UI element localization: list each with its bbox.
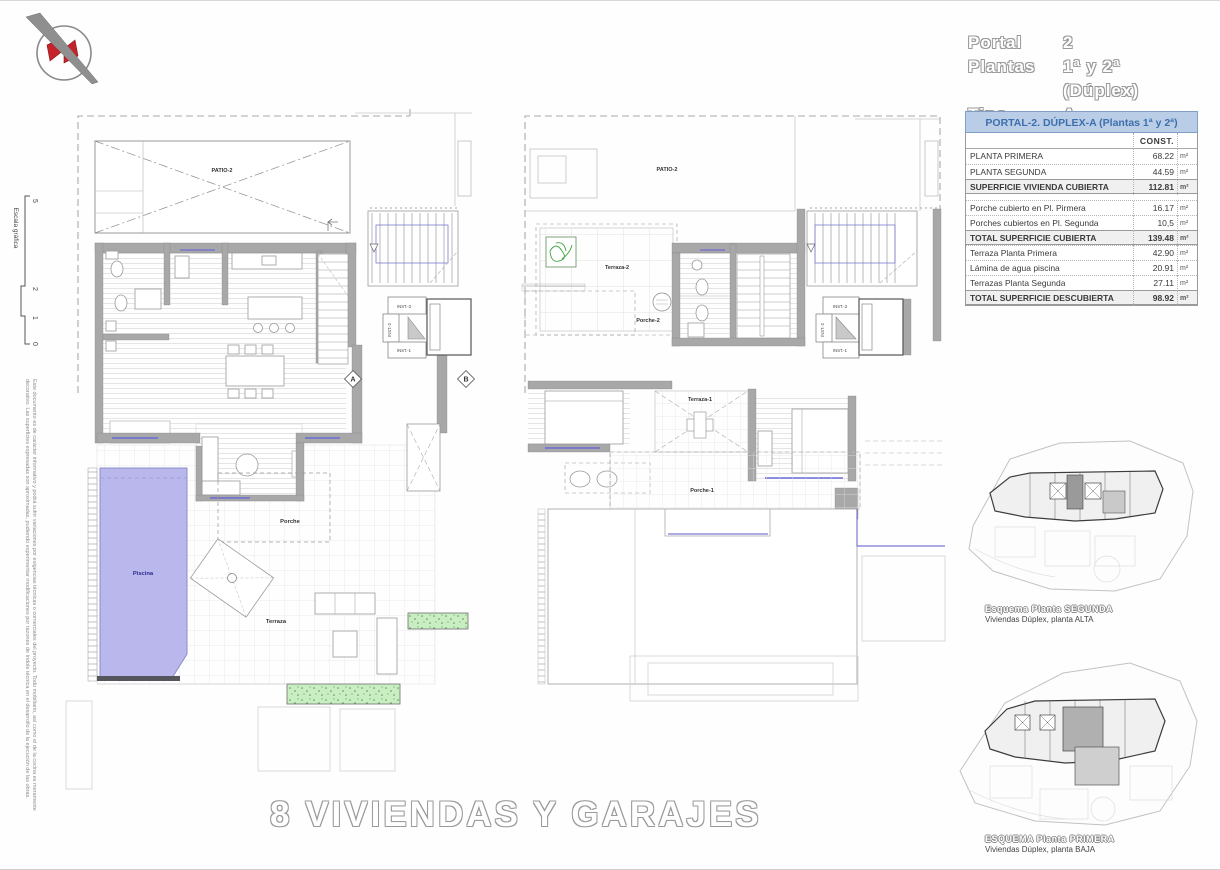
table-row: PLANTA SEGUNDA44.59m² [966, 164, 1197, 179]
table-row: SUPERFICIE VIVIENDA CUBIERTA112.81m² [966, 179, 1197, 194]
site-plan-primera-subcaption: Viviendas Dúplex, planta BAJA [985, 845, 1210, 854]
light-shaft [407, 424, 440, 491]
row-unit: m² [1177, 216, 1197, 231]
row-value: 98.92 [1133, 291, 1177, 306]
table-row: PLANTA PRIMERA68.22m² [966, 149, 1197, 164]
row-value: 44.59 [1133, 165, 1177, 180]
margin-disclaimer: Este documento es de carácter informativ… [23, 379, 37, 737]
inst1-label: INST.-1 [397, 348, 412, 353]
row-label: Lámina de agua piscina [966, 261, 1133, 276]
row-label: SUPERFICIE VIVIENDA CUBIERTA [966, 180, 1133, 195]
disclaimer-line-1: Este documento es de carácter informativ… [30, 379, 37, 737]
scale-tick-2: 2 [31, 287, 38, 291]
architect-logo [18, 9, 104, 95]
plan-sheet: 5 2 1 0 Escala gráfica Este documento es… [0, 0, 1220, 870]
const-header: CONST. [1133, 133, 1177, 149]
row-value: 16.17 [1133, 201, 1177, 216]
scale-line [21, 196, 30, 344]
communal-stairs [807, 208, 940, 286]
site-plan-segunda-drawing [955, 431, 1205, 599]
row-unit: m² [1177, 231, 1197, 246]
roof-edge-lines [355, 113, 472, 206]
living-room [196, 424, 302, 501]
site-plan-segunda-subcaption: Viviendas Dúplex, planta ALTA [985, 615, 1205, 624]
building-footprint [990, 471, 1163, 521]
scale-label: Escala gráfica [12, 208, 19, 249]
floor-plan-planta-segunda: PATIO-2 Terraza-2 Porche-2 [518, 109, 948, 724]
site-plan-segunda: Esquema Planta SEGUNDA Viviendas Dúplex,… [955, 431, 1205, 624]
sheet-title: 8 VIVIENDAS Y GARAJES [270, 795, 762, 835]
inst3-label: INST.-3 [833, 304, 848, 309]
row-label: TOTAL SUPERFICIE CUBIERTA [966, 231, 1133, 246]
row-value: 42.90 [1133, 246, 1177, 261]
pool: Piscina [88, 468, 187, 681]
inst3-label: INST.-3 [397, 304, 412, 309]
disclaimer-line-2: decorativo. Las superficies expresadas s… [23, 379, 30, 737]
row-label: Terrazas Planta Segunda [966, 276, 1133, 291]
graphic-scale: 5 2 1 0 Escala gráfica [5, 186, 45, 361]
row-label: Terraza Planta Primera [966, 246, 1133, 261]
highlighted-unit [1067, 475, 1083, 509]
row-label: PLANTA SEGUNDA [966, 165, 1133, 180]
elevator-shaft [859, 299, 903, 355]
floor-plan-planta-primera: PATIO-2 [60, 109, 480, 801]
scale-tick-1: 1 [31, 316, 38, 320]
elevator-shaft [427, 299, 471, 355]
row-unit: m² [1177, 149, 1197, 164]
site-plan-primera-caption: ESQUEMA Planta PRIMERA [985, 834, 1210, 844]
id-value-plantas: 1ª y 2ª (Dúplex) [1063, 55, 1200, 103]
table-row: TOTAL SUPERFICIE DESCUBIERTA98.92m² [966, 290, 1197, 305]
row-unit: m² [1177, 276, 1197, 291]
highlighted-unit [1063, 707, 1103, 751]
scale-tick-0: 0 [31, 342, 38, 346]
row-label: Porches cubiertos en Pl. Segunda [966, 216, 1133, 231]
row-unit: m² [1177, 291, 1197, 306]
inst2-label: INST.-2 [387, 322, 392, 337]
scale-tick-5: 5 [31, 199, 38, 203]
roof-edge-lines [525, 116, 940, 211]
site-plan-segunda-caption: Esquema Planta SEGUNDA [985, 604, 1205, 614]
internal-stairs [737, 254, 790, 338]
marker-a: A [350, 376, 355, 383]
row-unit: m² [1177, 246, 1197, 261]
highlighted-terrace [1075, 747, 1119, 785]
inst2-label: INST.-2 [820, 322, 825, 337]
row-unit: m² [1177, 165, 1197, 180]
table-row: Porche cubierto en Pl. Pirmera16.17m² [966, 200, 1197, 215]
table-row: Terraza Planta Primera42.90m² [966, 245, 1197, 260]
terraza-1-label: Terraza-1 [688, 397, 712, 403]
porche-1-area: Porche-1 [610, 452, 860, 509]
patio-2-label: PATIO-2 [212, 168, 233, 174]
pool-label: Piscina [133, 571, 154, 577]
neighbour-patio [530, 149, 597, 198]
table-column-header: CONST. [966, 133, 1197, 149]
internal-stairs [318, 254, 348, 364]
row-value: 112.81 [1133, 180, 1177, 195]
table-row: Porches cubiertos en Pl. Segunda10,5m² [966, 215, 1197, 230]
id-value-portal: 2 [1063, 31, 1200, 55]
porche-label: Porche [280, 519, 300, 525]
row-value: 68.22 [1133, 149, 1177, 164]
row-value: 20.91 [1133, 261, 1177, 276]
area-table-rows: PLANTA PRIMERA68.22m²PLANTA SEGUNDA44.59… [966, 149, 1197, 305]
inst1-label: INST.-1 [833, 348, 848, 353]
lower-terrace [538, 509, 945, 684]
table-row: TOTAL SUPERFICIE CUBIERTA139.48m² [966, 230, 1197, 245]
section-markers: A B [345, 371, 475, 388]
table-title: PORTAL-2. DÚPLEX-A (Plantas 1ª y 2ª) [965, 111, 1198, 133]
row-label: TOTAL SUPERFICIE DESCUBIERTA [966, 291, 1133, 306]
patio-2-label: PATIO-2 [657, 167, 678, 173]
row-unit: m² [1177, 180, 1197, 195]
table-row: Terrazas Planta Segunda27.11m² [966, 275, 1197, 290]
terraza-2-label: Terraza-2 [605, 265, 629, 271]
row-value: 139.48 [1133, 231, 1177, 246]
elevator-block: INST.-3 INST.-2 INST.-1 [383, 297, 471, 358]
id-label-plantas: Plantas [968, 55, 1063, 103]
row-unit: m² [1177, 261, 1197, 276]
site-plan-primera: ESQUEMA Planta PRIMERA Viviendas Dúplex,… [945, 651, 1210, 854]
porche-1-label: Porche-1 [690, 488, 714, 494]
table-row: Lámina de agua piscina20.91m² [966, 260, 1197, 275]
communal-stairs [368, 208, 458, 286]
elevator-block: INST.-3 INST.-2 INST.-1 [816, 297, 903, 358]
terraza-label: Terraza [266, 619, 287, 625]
row-unit: m² [1177, 201, 1197, 216]
porche-2-label: Porche-2 [636, 318, 660, 324]
marker-b: B [463, 376, 468, 383]
row-value: 10,5 [1133, 216, 1177, 231]
patio-2-area: PATIO-2 [95, 141, 350, 233]
id-label-portal: Portal [968, 31, 1063, 55]
terraza-1-area: Terraza-1 [655, 391, 748, 452]
kitchen-island [248, 297, 302, 319]
row-label: PLANTA PRIMERA [966, 149, 1133, 164]
site-plan-primera-drawing [945, 651, 1210, 829]
row-value: 27.11 [1133, 276, 1177, 291]
row-label: Porche cubierto en Pl. Pirmera [966, 201, 1133, 216]
surface-area-table: PORTAL-2. DÚPLEX-A (Plantas 1ª y 2ª) CON… [965, 111, 1198, 306]
